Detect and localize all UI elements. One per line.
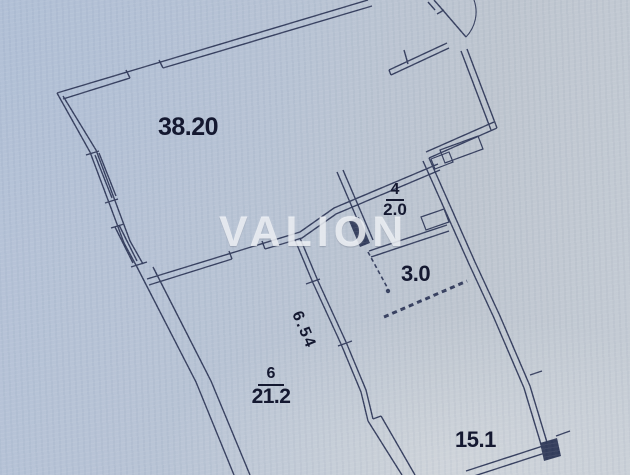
top-wall-inner-line xyxy=(63,6,372,99)
right-wall-lower xyxy=(423,158,549,451)
wall-6-54-lower-thick xyxy=(368,416,415,475)
window-end-ticks xyxy=(86,151,147,267)
removed-partition-zigzag xyxy=(384,281,467,317)
floor-plan-page: 38.20 4 2.0 3.0 6.54 6 21.2 15.1 VALION xyxy=(0,0,630,475)
entrance-door-tick xyxy=(437,10,444,14)
left-wall-inner-line xyxy=(63,96,143,264)
room4-bottom-door-rect xyxy=(421,209,449,230)
left-wall-outer-line xyxy=(57,93,234,475)
label-corridor-area: 3.0 xyxy=(401,263,430,286)
right-wall-jog xyxy=(426,122,497,158)
room-6-area: 21.2 xyxy=(247,386,295,408)
room-4-number: 4 xyxy=(386,182,405,201)
valion-watermark: VALION xyxy=(219,211,408,254)
room4-dashed-extension xyxy=(368,252,387,287)
vestibule-partition-wall xyxy=(389,43,449,75)
label-room-6: 6 21.2 xyxy=(247,366,295,408)
right-walls xyxy=(423,0,570,475)
label-room-38-area: 38.20 xyxy=(158,114,218,140)
bottom-right-corner-block xyxy=(540,438,561,461)
hall-door-rect-small xyxy=(431,152,453,169)
entrance-wall xyxy=(428,0,497,130)
entrance-door-swing-arc xyxy=(466,0,476,37)
interior-walls xyxy=(147,43,449,475)
room-6-number: 6 xyxy=(258,366,285,386)
dashed-end-dot xyxy=(386,289,390,293)
left-wall-lower-thick-line xyxy=(153,267,250,475)
label-room-15-area: 15.1 xyxy=(455,429,496,452)
entrance-door-leaf xyxy=(441,8,466,37)
hall-door-rect xyxy=(440,136,483,163)
top-wall-outer-line xyxy=(57,0,368,93)
